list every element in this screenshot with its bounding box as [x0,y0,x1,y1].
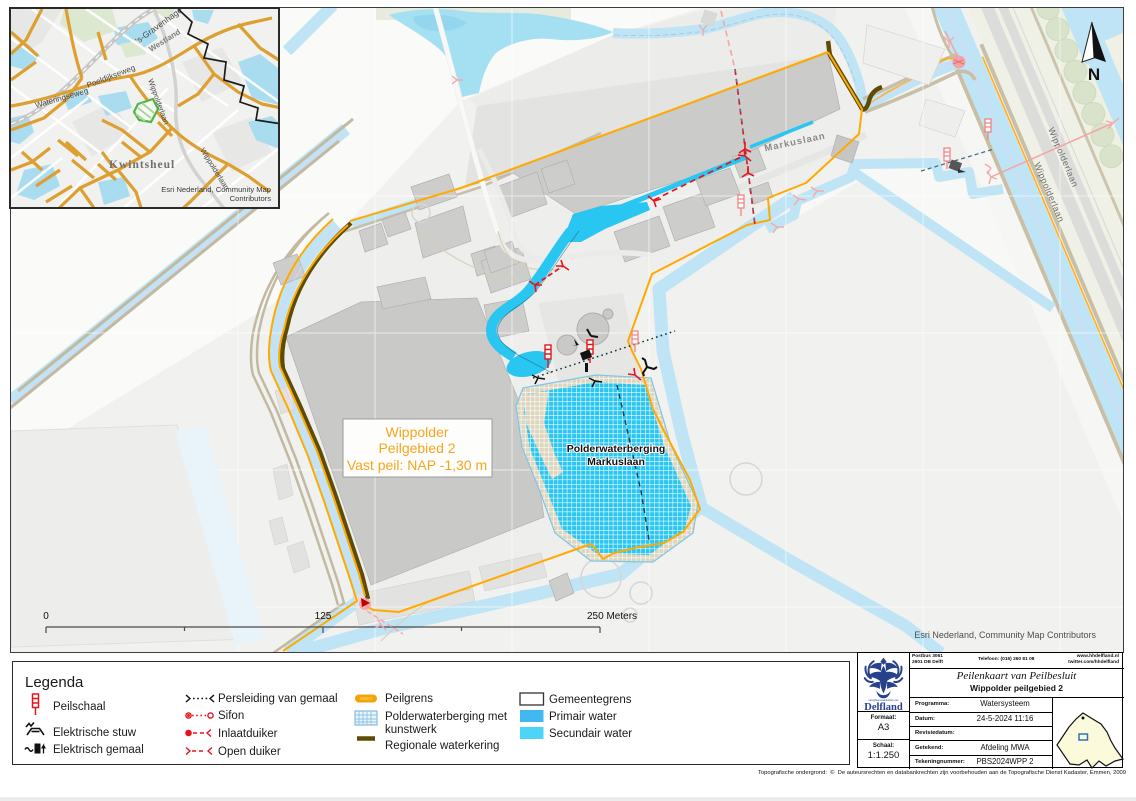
svg-text:250 Meters: 250 Meters [587,611,637,622]
svg-text:Open duiker: Open duiker [218,746,281,758]
svg-text:Primair water: Primair water [549,711,617,723]
svg-text:Peilgebied 2: Peilgebied 2 [378,440,455,456]
svg-text:Markuslaan: Markuslaan [587,456,645,468]
svg-text:Esri Nederland, Community Map: Esri Nederland, Community Map Contributo… [914,630,1096,640]
svg-text:Esri Nederland, Community Map: Esri Nederland, Community Map [161,185,271,194]
svg-text:Gemeentegrens: Gemeentegrens [549,694,632,706]
svg-text:Secundair water: Secundair water [549,728,632,740]
svg-text:Peilgrens: Peilgrens [385,693,433,705]
svg-text:125: 125 [315,611,332,622]
svg-text:Persleiding van gemaal: Persleiding van gemaal [218,693,338,705]
svg-text:Polderwaterberging met: Polderwaterberging met [385,711,508,723]
svg-text:Regionale waterkering: Regionale waterkering [385,740,499,752]
svg-text:Peilschaal: Peilschaal [53,701,105,713]
svg-text:Kwintsheul: Kwintsheul [109,159,175,171]
svg-text:kunstwerk: kunstwerk [385,724,437,736]
svg-text:Sifon: Sifon [218,710,244,722]
svg-text:N: N [1088,65,1100,84]
svg-text:Inlaatduiker: Inlaatduiker [218,728,278,740]
svg-text:Elektrisch gemaal: Elektrisch gemaal [53,744,144,756]
svg-text:Contributors: Contributors [230,194,272,203]
svg-text:Wippolder: Wippolder [385,424,448,440]
svg-text:Elektrische stuw: Elektrische stuw [53,727,137,739]
svg-text:0: 0 [43,611,49,622]
svg-text:Legenda: Legenda [25,674,84,691]
svg-text:Vast peil: NAP -1,30 m: Vast peil: NAP -1,30 m [347,457,487,473]
svg-text:Polderwaterberging: Polderwaterberging [567,443,666,455]
